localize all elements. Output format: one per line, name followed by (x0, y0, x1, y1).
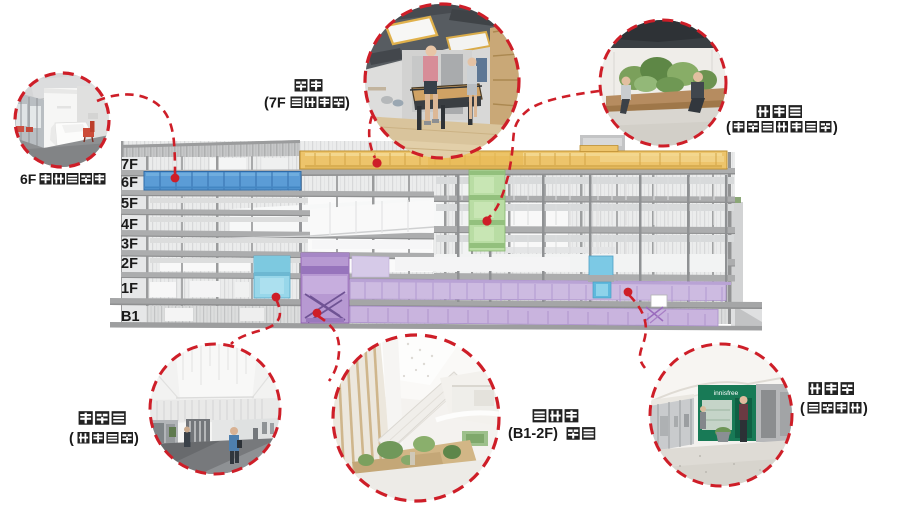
svg-text:(: ( (726, 120, 731, 136)
svg-text:6F: 6F (121, 175, 138, 191)
svg-text:3F: 3F (121, 237, 138, 253)
svg-text:4F: 4F (121, 217, 138, 233)
svg-text:(B1-2F): (B1-2F) (508, 426, 558, 442)
svg-text:): ) (345, 96, 350, 112)
svg-text:): ) (833, 120, 838, 136)
svg-text:(: ( (69, 431, 74, 447)
svg-text:5F: 5F (121, 196, 138, 212)
svg-text:(7F: (7F (264, 96, 286, 112)
svg-text:7F: 7F (121, 157, 138, 173)
svg-text:1F: 1F (121, 281, 138, 297)
svg-text:B1: B1 (121, 309, 140, 325)
svg-text:(: ( (800, 401, 805, 417)
svg-text:): ) (863, 401, 868, 417)
svg-text:): ) (134, 431, 139, 447)
svg-text:6F: 6F (20, 171, 37, 187)
svg-text:innisfree: innisfree (714, 390, 739, 397)
svg-text:2F: 2F (121, 256, 138, 272)
